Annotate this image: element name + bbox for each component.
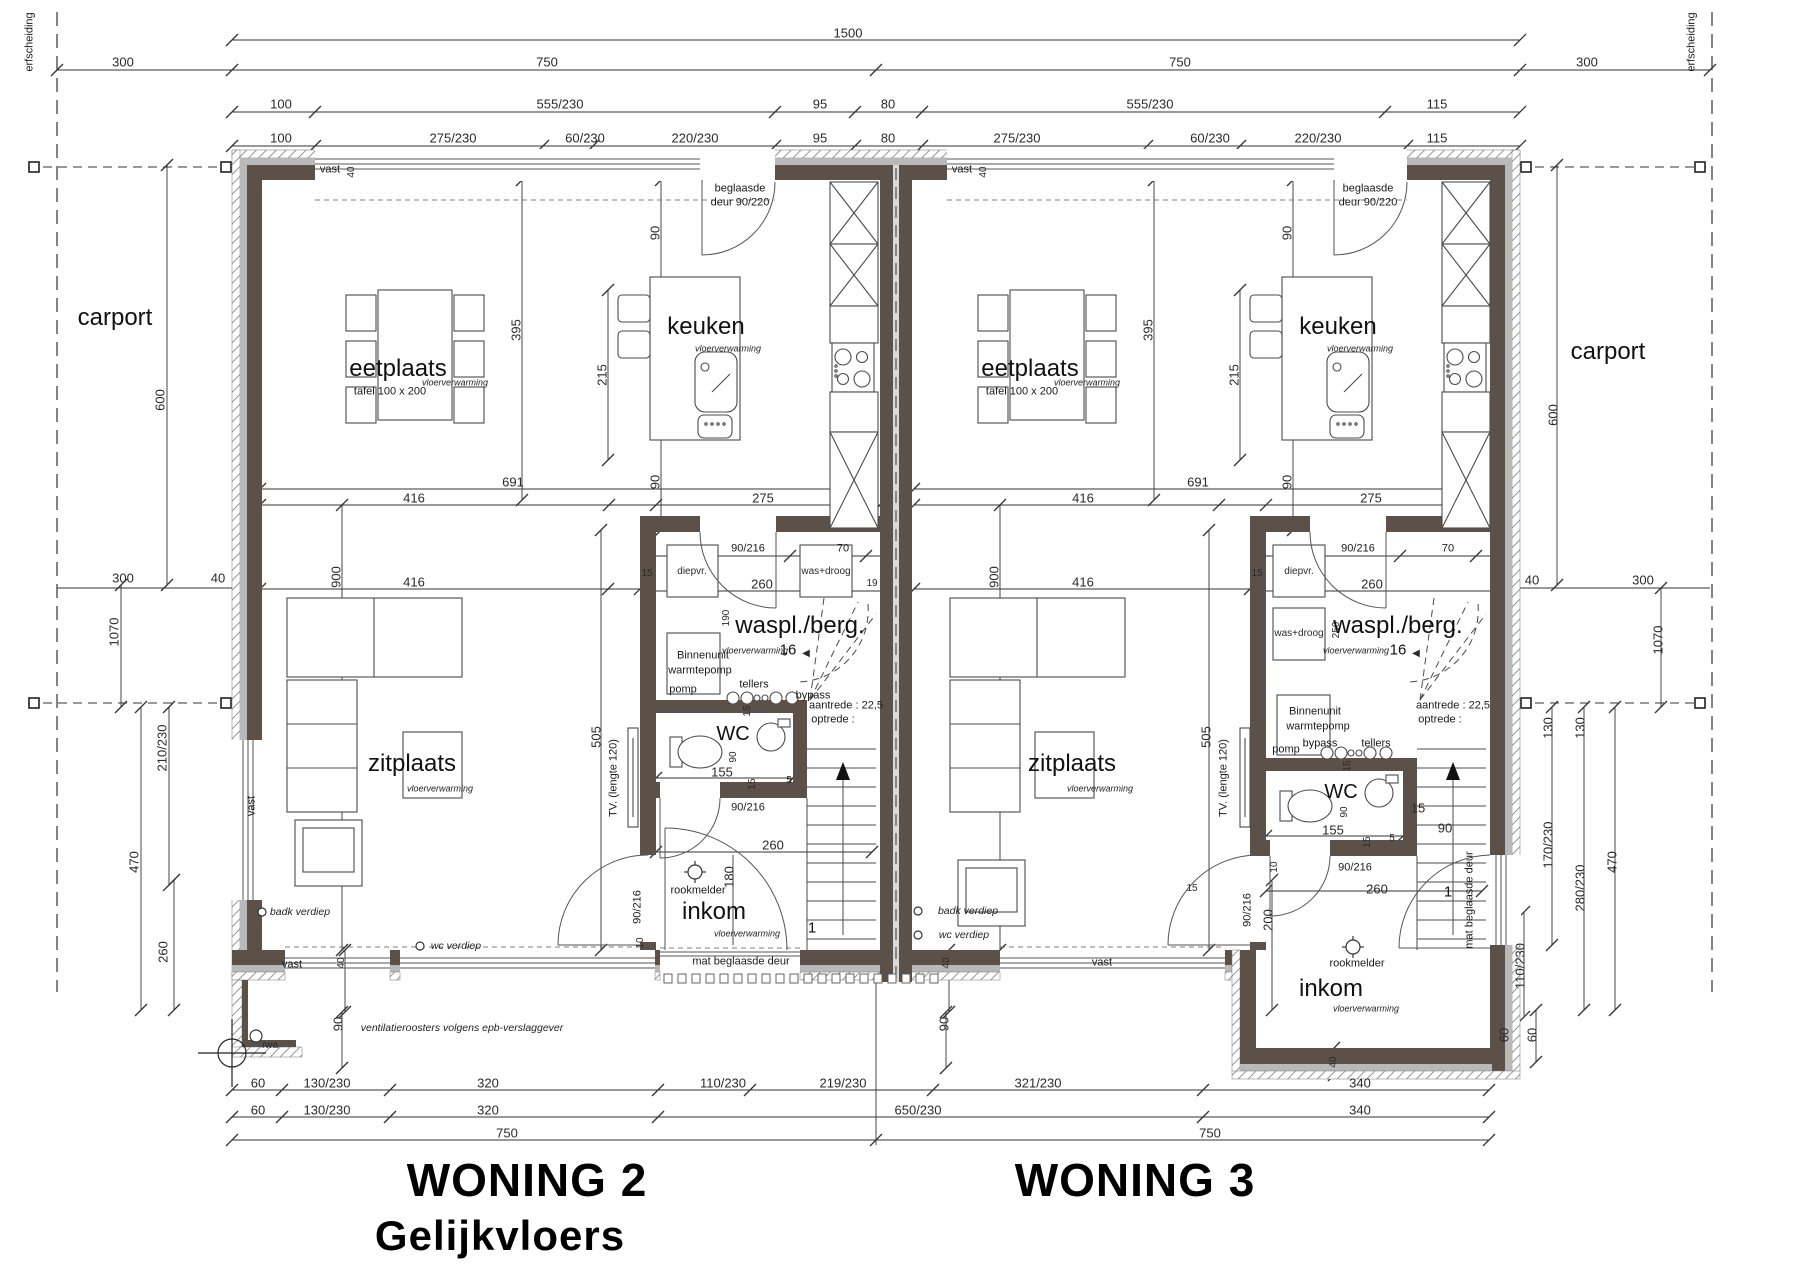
floor-plan-canvas: 1500300750750300100555/2309580555/230115… [0,0,1800,1288]
furniture-woning2 [287,182,878,886]
survey-point [198,1019,266,1087]
title-woning-2-sub: Gelijkvloers [375,1212,625,1260]
title-woning-3: WONING 3 [1015,1153,1256,1207]
stairs-woning3 [1408,598,1486,950]
floor-plan-drawing [0,0,1800,1288]
stairs-woning2 [798,598,876,950]
title-woning-2: WONING 2 [407,1153,648,1207]
